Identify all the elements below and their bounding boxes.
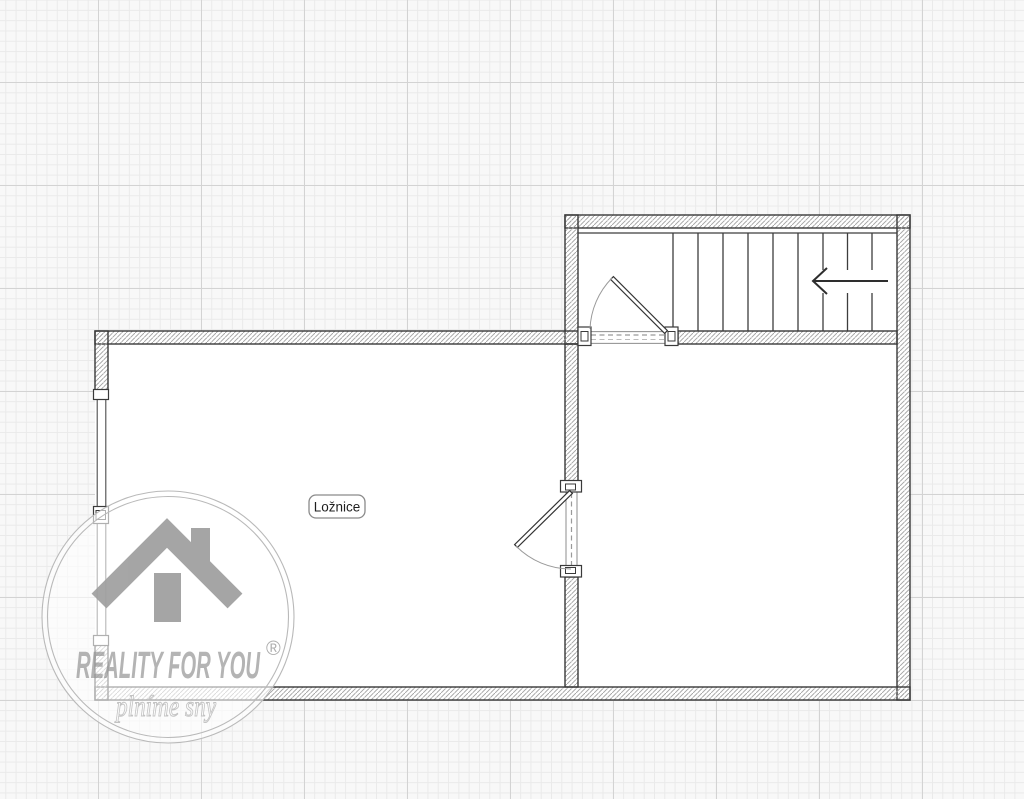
room-label: Ložnice — [309, 495, 365, 518]
top-wall-left-segment — [95, 331, 583, 344]
room-label-text: Ložnice — [314, 500, 361, 515]
stair-room-top-wall — [565, 215, 910, 228]
left-wall-upper — [95, 331, 108, 393]
watermark-registered-mark: ® — [266, 638, 281, 660]
divider-wall-upper — [565, 344, 578, 483]
right-wall — [897, 215, 910, 700]
watermark-brand-text: REALITY FOR YOU — [76, 645, 261, 687]
floor-plan-drawing: Ložnice REALITY FOR YOU ® plníme sny — [0, 0, 1024, 799]
divider-wall-lower — [565, 577, 578, 687]
watermark-tagline-text: plníme sny — [114, 690, 216, 723]
top-wall-right-segment — [678, 331, 897, 344]
watermark-logo: REALITY FOR YOU ® plníme sny — [42, 491, 294, 743]
stair-room-left-wall — [565, 215, 578, 344]
floor-plan-canvas: Ložnice REALITY FOR YOU ® plníme sny — [0, 0, 1024, 799]
